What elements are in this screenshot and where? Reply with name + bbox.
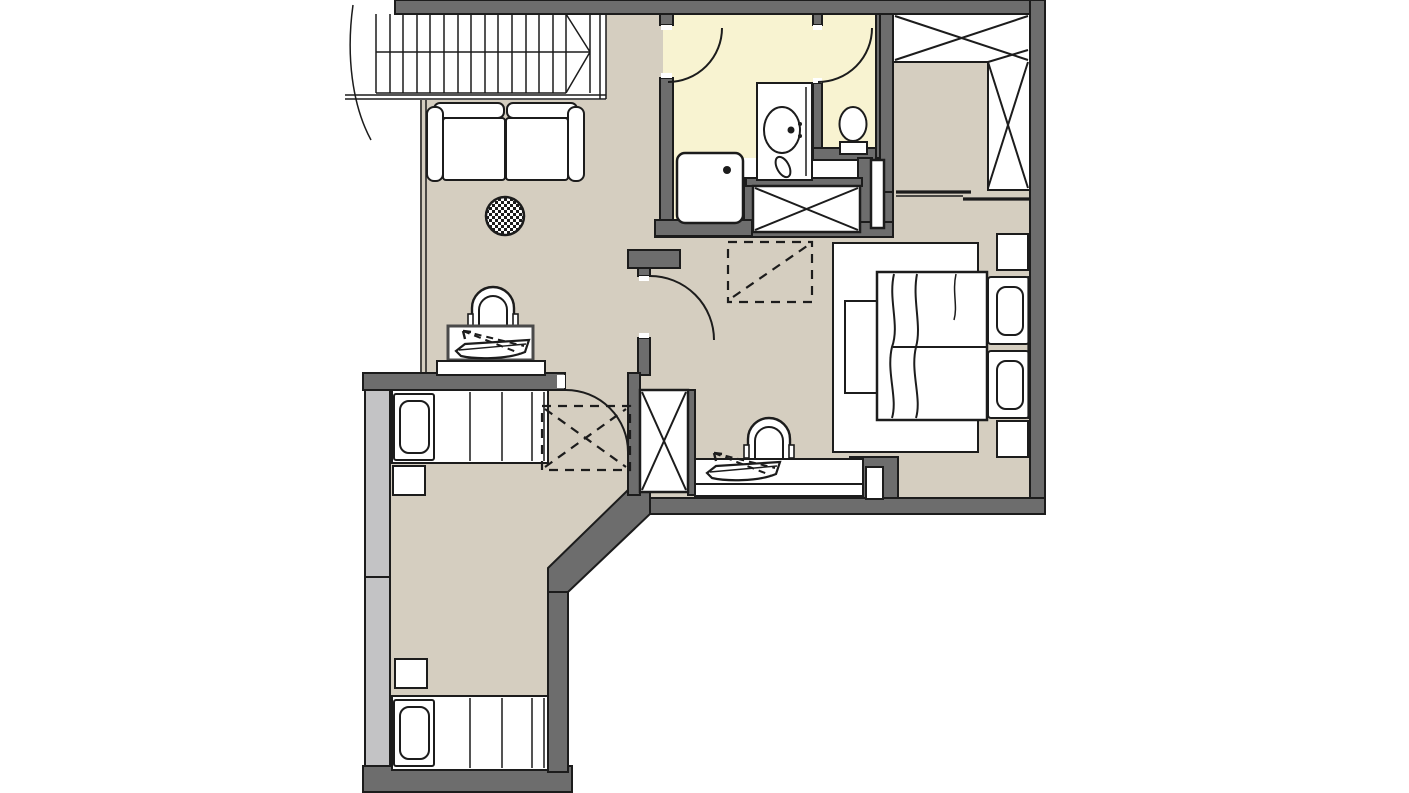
door-frame-cap xyxy=(639,276,649,281)
sofa-seat-cushion xyxy=(443,118,505,180)
toilet xyxy=(840,107,868,154)
bath-partition-wall xyxy=(813,83,822,155)
nightstand xyxy=(395,659,427,688)
pillow xyxy=(400,707,429,759)
bed-bench xyxy=(845,301,877,393)
nightstand xyxy=(997,234,1028,270)
sideboard xyxy=(437,361,545,375)
nightstand xyxy=(997,421,1028,457)
pillow xyxy=(997,361,1023,409)
stair-break-line xyxy=(566,14,590,93)
dressing-floor xyxy=(893,62,988,190)
floor-plan-canvas xyxy=(0,0,1409,793)
door-frame-cap xyxy=(661,73,672,78)
bath-west-wall xyxy=(660,78,673,233)
round-table-top xyxy=(486,197,524,235)
sofa-seat-cushion xyxy=(506,118,568,180)
single-bed-north xyxy=(392,390,548,463)
shower-tray xyxy=(677,153,743,223)
bedroom-door-stub-bottom xyxy=(638,338,650,375)
pillow xyxy=(400,401,429,453)
floor-plan-page xyxy=(0,0,1409,793)
wall-bedroom-south xyxy=(630,498,1045,514)
door-frame-cap xyxy=(557,375,565,388)
door-threshold-floor xyxy=(565,373,628,390)
shower xyxy=(677,153,743,223)
wall-second-bedroom-east xyxy=(548,570,568,772)
stair-treads-line xyxy=(376,52,590,93)
tap-handle xyxy=(798,122,802,126)
corridor-wall-b xyxy=(628,250,680,268)
desk-shelf xyxy=(695,484,863,496)
door-frame-cap xyxy=(813,25,822,30)
stair-curved-rail xyxy=(350,5,371,140)
wall-east xyxy=(1030,0,1045,514)
faucet xyxy=(788,127,795,134)
shaft-channel xyxy=(871,160,884,228)
pillow xyxy=(997,287,1023,335)
sofa-back-cushion xyxy=(434,103,504,118)
sofa-back-cushion xyxy=(507,103,577,118)
stair-steps xyxy=(376,14,566,93)
nightstand xyxy=(393,466,425,495)
tap-handle xyxy=(798,134,802,138)
door-frame-cap xyxy=(639,333,649,338)
wall-north xyxy=(395,0,1045,14)
side-table xyxy=(486,197,524,235)
sofa-armrest xyxy=(568,107,584,181)
single-bed-south xyxy=(392,696,548,770)
bedroom-door-stub-top xyxy=(638,268,650,276)
shower-drain xyxy=(723,166,731,174)
wall-niche xyxy=(866,467,883,499)
toilet-bowl xyxy=(840,107,867,141)
sofa-armrest xyxy=(427,107,443,181)
wc-door-post xyxy=(813,14,822,25)
washbasin xyxy=(764,107,800,153)
window-wall-west xyxy=(365,390,390,768)
stair-landing-edge xyxy=(345,14,606,99)
washbasin-vanity xyxy=(757,83,812,180)
bath-door-post xyxy=(660,14,673,25)
door-frame-cap xyxy=(661,25,672,30)
toilet-cistern xyxy=(840,142,867,154)
